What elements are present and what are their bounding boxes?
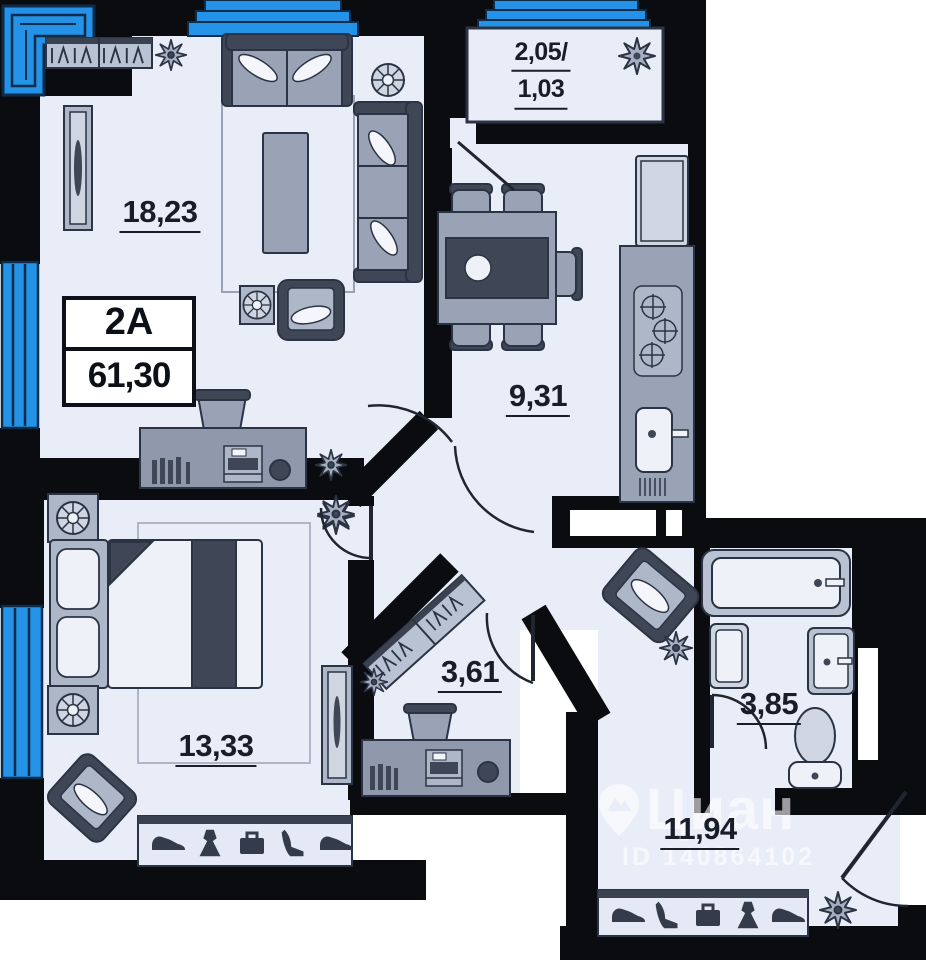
kitchen-counter	[620, 246, 694, 502]
room-area-kitchen: 9,31	[506, 378, 570, 414]
plant-icon	[361, 669, 388, 696]
bathtub	[702, 550, 850, 616]
laptop-icon	[426, 750, 462, 786]
room-area-bathroom: 3,85	[737, 686, 801, 722]
washing-machine	[710, 624, 748, 688]
coffee-table	[263, 133, 308, 253]
room-area-bedroom: 13,33	[175, 728, 256, 764]
double-bed	[50, 540, 262, 688]
unit-card: 2A 61,30	[62, 296, 196, 407]
sofa	[222, 34, 352, 106]
room-area-balcony: 2,05/ 1,03	[511, 35, 570, 110]
laptop-icon	[224, 446, 262, 482]
side-table-fan	[240, 286, 274, 324]
plant-icon	[660, 632, 692, 664]
wall-segment	[566, 712, 598, 816]
plant-icon	[316, 450, 347, 481]
wall-segment	[0, 498, 44, 608]
floor-plan: 18,23 9,31 13,33 3,61 3,85 11,94 2,05/ 1…	[0, 0, 926, 960]
closet	[598, 890, 808, 936]
room-area-corridor: 11,94	[660, 811, 739, 847]
wardrobe	[46, 38, 152, 68]
ceiling-fan-icon	[372, 64, 404, 96]
window-living-top	[188, 0, 358, 36]
nightstand	[48, 686, 98, 734]
room-area-living: 18,23	[119, 194, 200, 230]
nightstand	[48, 494, 98, 542]
cabinet	[64, 106, 92, 230]
couch	[354, 102, 422, 282]
unit-total-area: 61,30	[66, 351, 192, 403]
dresser	[322, 666, 352, 784]
wall-segment	[0, 778, 44, 870]
window-living-left	[2, 262, 38, 428]
cian-pin-icon	[596, 782, 642, 838]
bathroom-sink	[808, 628, 854, 694]
window-bedroom-left	[2, 606, 42, 778]
dining-table	[438, 212, 556, 324]
closet	[138, 816, 353, 866]
wall-segment	[566, 812, 598, 928]
stove-icon	[634, 286, 682, 376]
plant-icon	[820, 892, 856, 928]
armchair	[278, 280, 344, 340]
wall-segment	[0, 96, 40, 264]
wall-segment	[898, 905, 926, 930]
unit-label: 2A	[66, 300, 192, 351]
plant-icon	[156, 40, 187, 71]
room-area-hall: 3,61	[438, 654, 502, 690]
fridge	[636, 156, 688, 246]
plant-icon	[619, 38, 655, 74]
wall-segment	[424, 0, 470, 118]
